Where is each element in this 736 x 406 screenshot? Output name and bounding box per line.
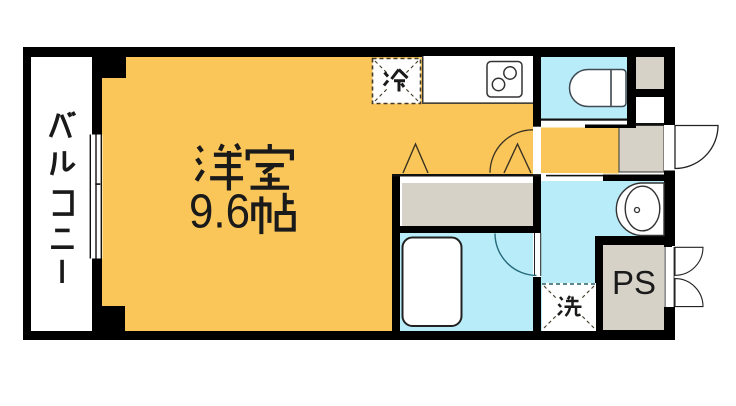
svg-text:9.6: 9.6 <box>189 186 250 239</box>
svg-text:PS: PS <box>612 264 656 301</box>
